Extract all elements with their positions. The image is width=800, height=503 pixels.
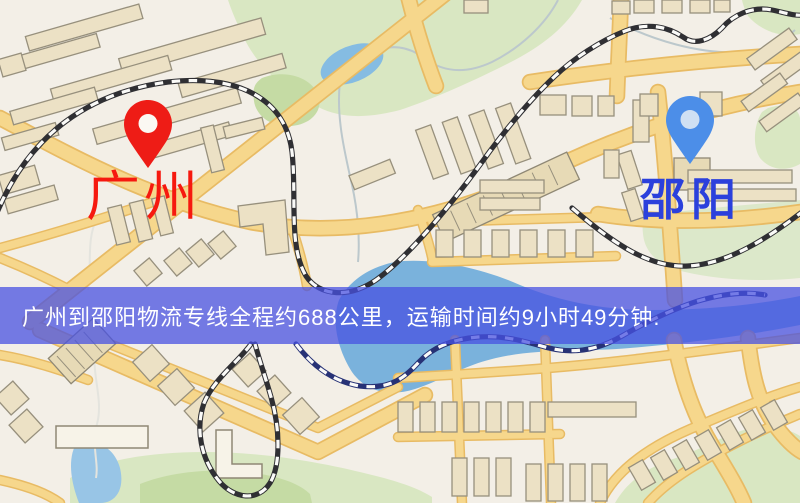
buildings-shape — [349, 159, 395, 189]
buildings-shape — [480, 198, 540, 210]
route-info-text: 广州到邵阳物流专线全程约688公里，运输时间约9小时49分钟. — [0, 300, 661, 332]
buildings-shape — [134, 258, 162, 286]
buildings-shape — [634, 0, 654, 13]
buildings-shape — [548, 230, 565, 257]
buildings-shape — [640, 94, 658, 116]
buildings-shape — [474, 458, 489, 496]
origin-pin-body — [124, 100, 172, 168]
buildings-shape — [442, 402, 457, 432]
destination-city-label: 邵阳 — [640, 177, 742, 222]
origin-pin-icon — [123, 99, 173, 169]
buildings-shape — [420, 402, 435, 432]
buildings-shape — [548, 402, 636, 417]
buildings-shape — [486, 402, 501, 432]
buildings-shape — [548, 464, 563, 501]
buildings-shape — [540, 95, 566, 115]
buildings-shape — [572, 96, 592, 116]
buildings-shape — [398, 402, 413, 432]
buildings-shape — [662, 0, 682, 13]
buildings-shape — [9, 409, 43, 443]
buildings-shape — [604, 150, 619, 178]
destination-pin-hole — [681, 110, 700, 129]
buildings-shape — [520, 230, 537, 257]
buildings-shape — [492, 230, 509, 257]
buildings-shape — [442, 117, 476, 174]
origin-city-label: 广州 — [86, 170, 202, 224]
buildings-shape — [714, 0, 730, 12]
buildings-shape — [690, 0, 710, 13]
buildings-shape — [530, 402, 545, 432]
buildings-shape — [464, 402, 479, 432]
buildings-shape — [0, 381, 29, 415]
route-info-banner: 广州到邵阳物流专线全程约688公里，运输时间约9小时49分钟. — [0, 287, 800, 344]
origin-pin-hole — [139, 114, 158, 133]
buildings-shape — [612, 1, 630, 14]
buildings-shape — [508, 402, 523, 432]
buildings-shape — [480, 180, 544, 193]
buildings-shape — [598, 96, 614, 116]
buildings-shape — [452, 458, 467, 496]
buildings-shape — [496, 458, 511, 496]
buildings-shape — [576, 230, 593, 257]
buildings-shape — [464, 230, 481, 257]
buildings-shape — [526, 464, 541, 501]
buildings-shape — [0, 53, 26, 77]
destination-pin-body — [666, 96, 714, 164]
map-view: 广州 邵阳 广州到邵阳物流专线全程约688公里，运输时间约9小时49分钟. — [0, 0, 800, 503]
buildings-shape — [436, 230, 453, 257]
buildings-shape — [592, 464, 607, 501]
buildings-shape — [617, 150, 642, 189]
destination-pin-icon — [665, 95, 715, 165]
park-areas-shape — [742, 0, 800, 35]
buildings-shape — [416, 125, 449, 179]
buildings-shape — [570, 464, 585, 501]
buildings-shape — [56, 426, 148, 448]
map-canvas — [0, 0, 800, 503]
buildings-shape — [464, 0, 488, 13]
